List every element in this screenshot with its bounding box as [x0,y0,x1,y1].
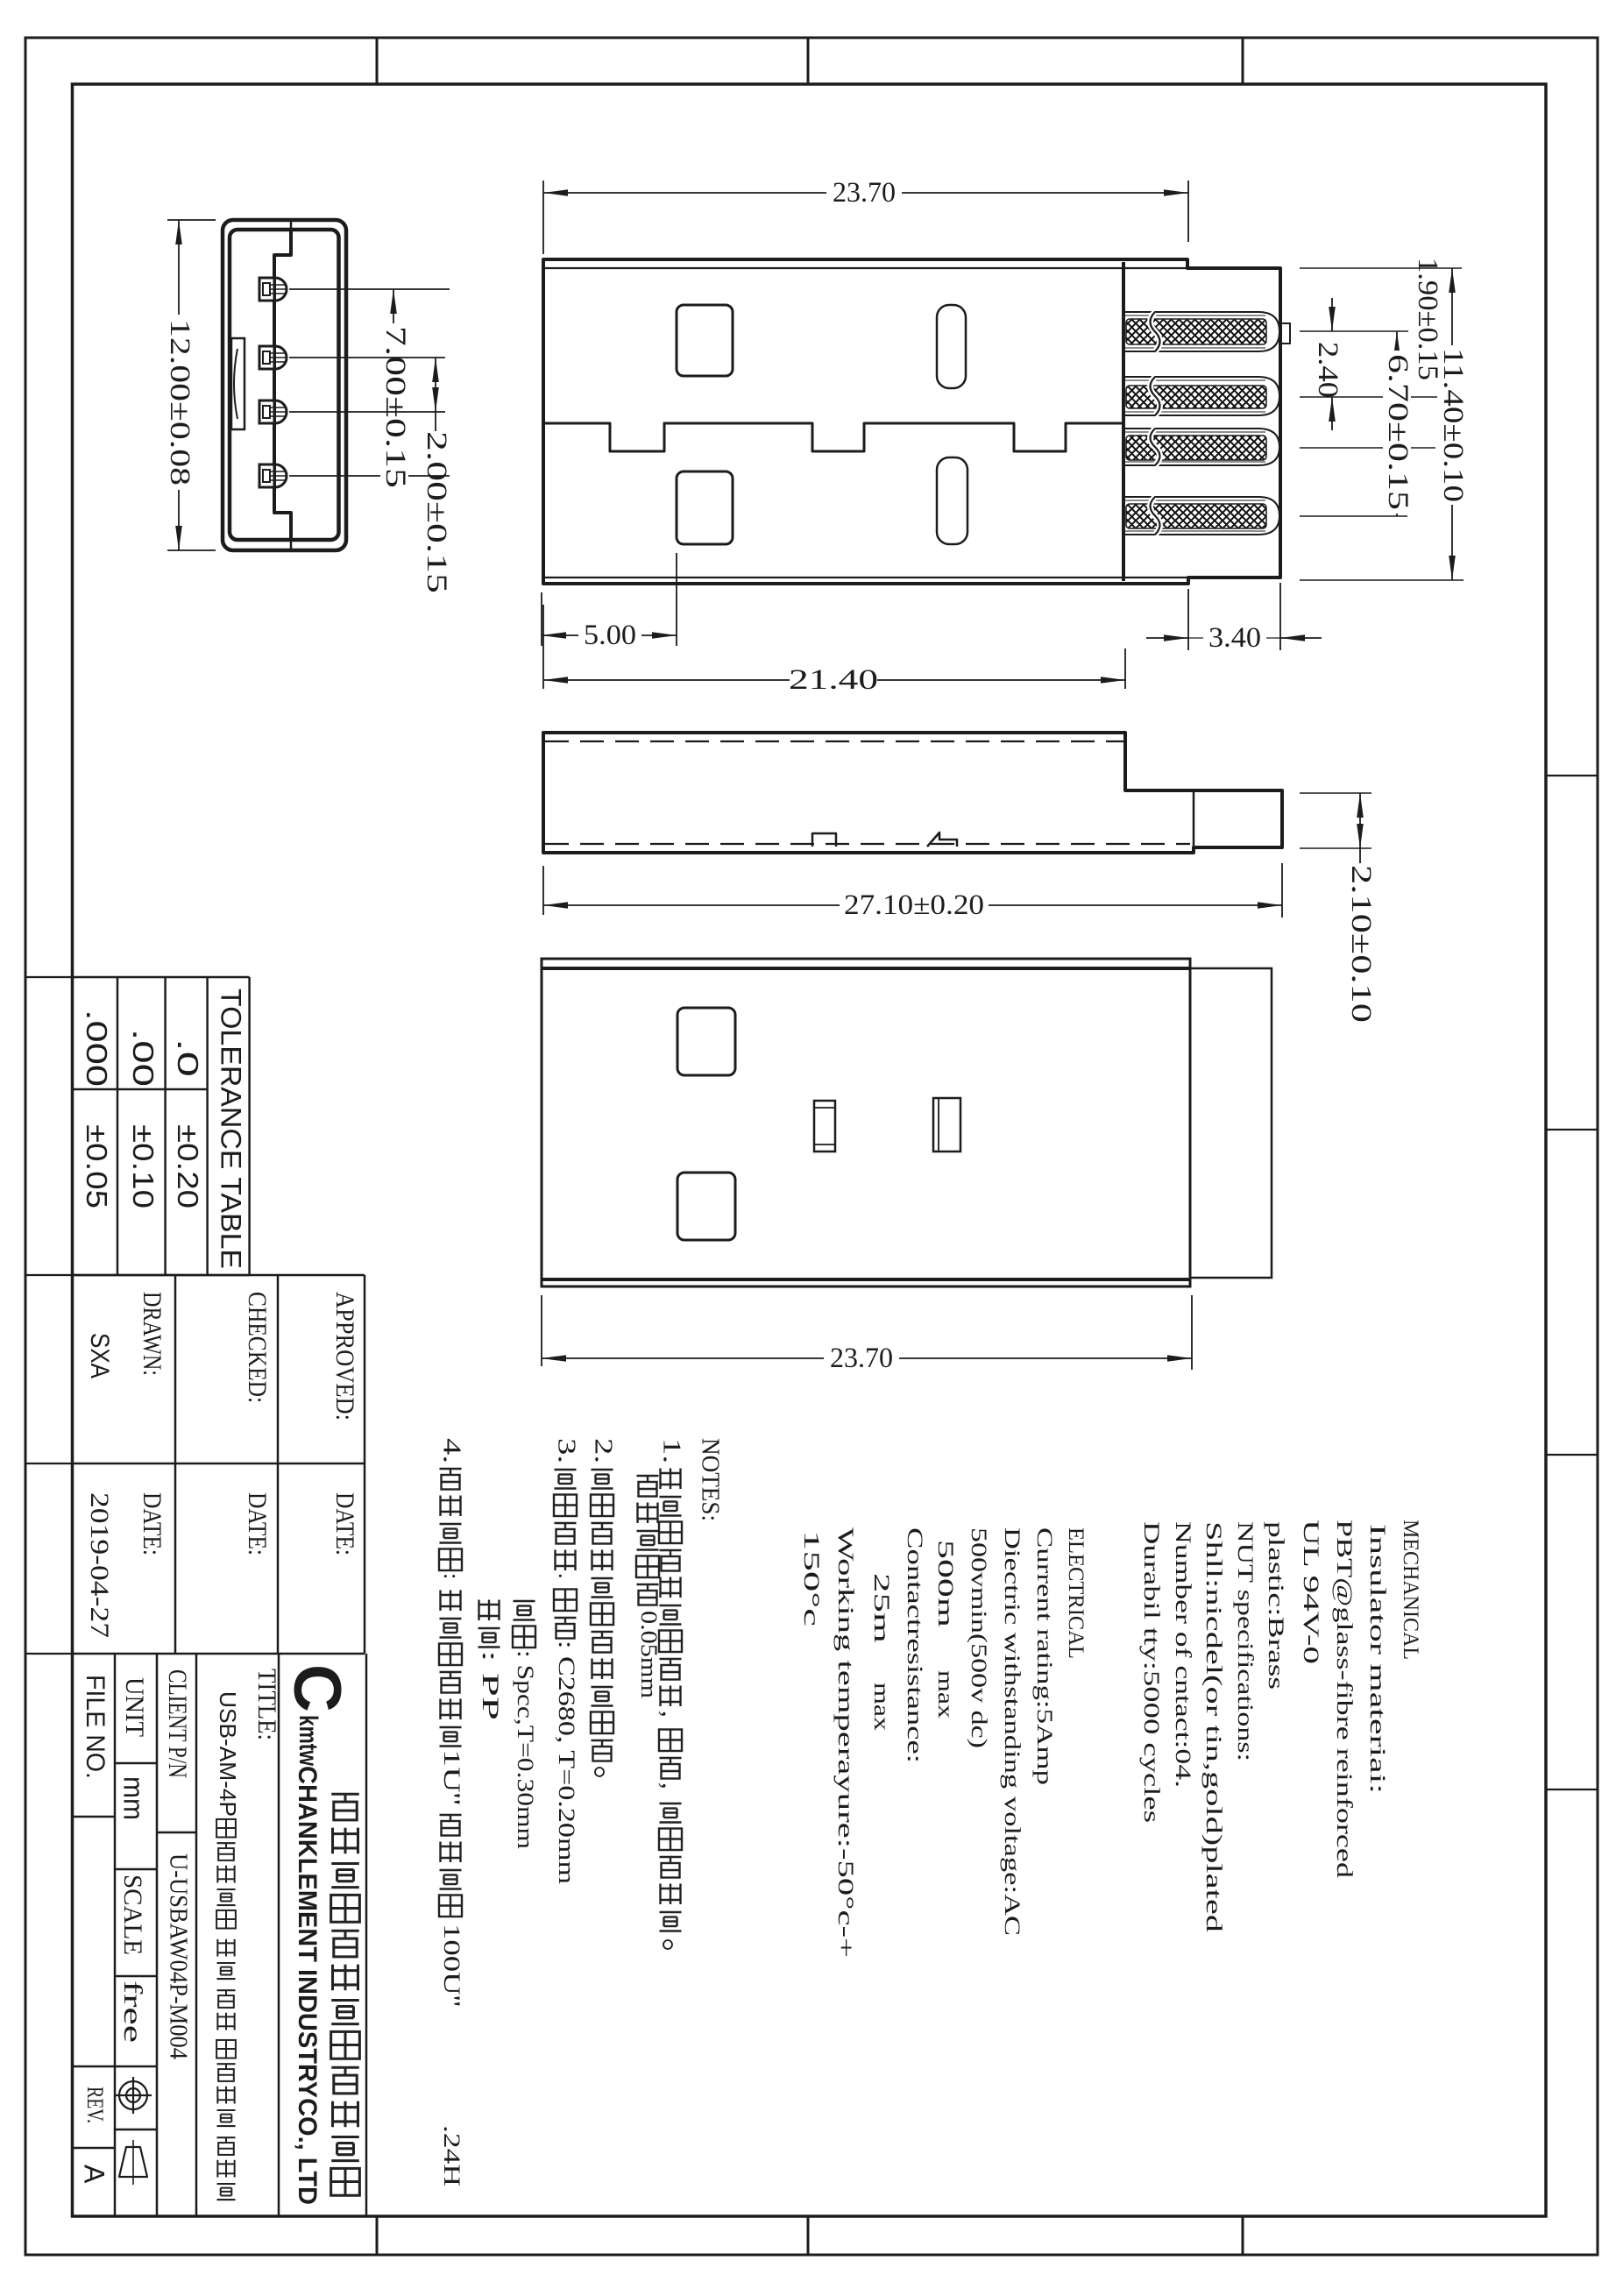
svg-text:DATE:: DATE: [330,1492,359,1555]
svg-text:3.40: 3.40 [1208,622,1261,654]
svg-text:2.40: 2.40 [1312,342,1343,398]
svg-text:3.: 3. [552,1438,579,1463]
svg-text:: C2680, T=0.20mm: : C2680, T=0.20mm [554,1641,579,1884]
svg-text:SXA: SXA [85,1333,114,1378]
svg-text:25m: 25m [869,1573,893,1644]
svg-text:C: C [280,1664,354,1712]
svg-text:A: A [78,2165,110,2184]
svg-text:Insulator materiai:: Insulator materiai: [1365,1524,1389,1794]
svg-text:Shll:nicdel(or tin,gold)plated: Shll:nicdel(or tin,gold)plated [1201,1521,1225,1933]
svg-text:PBT@glass-fibre reinforced: PBT@glass-fibre reinforced [1332,1520,1356,1879]
svg-text:max: max [933,1670,957,1719]
svg-text:150°c: 150°c [799,1530,823,1626]
svg-text:free: free [118,1981,147,2043]
svg-text:500vmin(500v dc): 500vmin(500v dc) [967,1527,990,1748]
svg-text:0.05mm: 0.05mm [636,1611,662,1698]
svg-text:Number of cntact:04.: Number of cntact:04. [1171,1521,1194,1788]
svg-text:1.: 1. [657,1438,684,1463]
svg-text:Diectric withstanding voltage:: Diectric withstanding voltage:AC [1000,1527,1024,1936]
svg-text:MECHANICAL: MECHANICAL [1399,1520,1422,1660]
svg-text:7.00±0.15: 7.00±0.15 [379,326,411,488]
svg-text:,: , [657,1782,688,1789]
svg-text:.00: .00 [127,1029,159,1087]
svg-text:.: . [554,1573,579,1579]
svg-text:4.: 4. [437,1438,464,1463]
svg-text:NUT specifications:: NUT specifications: [1233,1521,1257,1761]
svg-text:.000: .000 [81,1010,113,1087]
svg-text:ELECTRICAL: ELECTRICAL [1064,1527,1088,1659]
svg-text:27.10±0.20: 27.10±0.20 [844,889,984,921]
svg-text:1.90±0.15: 1.90±0.15 [1412,258,1443,380]
svg-text:±0.20: ±0.20 [172,1124,204,1208]
svg-text:USB-AM-4P: USB-AM-4P [215,1691,241,1817]
svg-text:CHANKLEMENT INDUSTRYCO., LTD: CHANKLEMENT INDUSTRYCO., LTD [293,1766,322,2205]
svg-text:2.10±0.10: 2.10±0.10 [1345,865,1377,1023]
svg-text:Working temperayure:-50°c-+: Working temperayure:-50°c-+ [833,1527,857,1958]
svg-text:6.70±0.15: 6.70±0.15 [1382,354,1414,510]
svg-text:DATE:: DATE: [138,1492,167,1555]
svg-text:100U'': 100U'' [439,1924,464,2007]
svg-text:TITLE:: TITLE: [252,1669,281,1740]
svg-text:: Spcc,T=0.30mm: : Spcc,T=0.30mm [513,1650,538,1849]
svg-text:Contactresistance:: Contactresistance: [903,1527,926,1763]
svg-text:TOLERANCE TABLE: TOLERANCE TABLE [215,989,246,1269]
svg-text:2.: 2. [589,1438,616,1463]
svg-text:2.00±0.15: 2.00±0.15 [421,431,452,593]
svg-text:DATE:: DATE: [243,1492,272,1555]
svg-text:21.40: 21.40 [789,664,878,696]
svg-text::: : [439,1573,464,1579]
svg-text:±0.10: ±0.10 [127,1124,159,1208]
svg-text:SCALE: SCALE [118,1874,147,1955]
svg-text:,: , [657,1711,688,1718]
svg-text:UL 94V-0: UL 94V-0 [1299,1520,1322,1664]
svg-text:APPROVED:: APPROVED: [330,1292,359,1421]
svg-text:DRAWN:: DRAWN: [138,1292,167,1376]
svg-text:NOTES:: NOTES: [696,1438,723,1521]
svg-text:±0.05: ±0.05 [81,1124,113,1208]
svg-text:1U'': 1U'' [439,1749,464,1805]
svg-text:2019-04-27: 2019-04-27 [85,1492,114,1638]
svg-text:.0: .0 [172,1038,204,1077]
svg-text:.24H: .24H [439,2125,464,2186]
svg-text:: PP: : PP [478,1650,503,1720]
svg-text:plastic:Brass: plastic:Brass [1264,1521,1287,1690]
svg-text:FILE NO.: FILE NO. [81,1675,110,1779]
svg-text:23.70: 23.70 [830,1343,893,1374]
svg-text:U-USBAW04P-M004: U-USBAW04P-M004 [164,1853,191,2059]
svg-text:CHECKED:: CHECKED: [243,1292,272,1403]
svg-text:Current rating:5Amp: Current rating:5Amp [1032,1527,1056,1785]
svg-text:5.00: 5.00 [584,620,636,651]
svg-text:CLIENT P/N: CLIENT P/N [163,1669,192,1778]
svg-text:REV.: REV. [82,2087,108,2123]
svg-text:kmtw: kmtw [294,1715,322,1767]
svg-text:max: max [869,1683,893,1732]
svg-text:12.00±0.08: 12.00±0.08 [164,319,195,485]
svg-text:500m: 500m [933,1540,957,1628]
svg-text:mm: mm [117,1776,149,1820]
svg-text:23.70: 23.70 [833,177,896,209]
svg-text:Durabil tty:5000 cycles: Durabil tty:5000 cycles [1139,1521,1163,1823]
svg-text:UNIT: UNIT [120,1677,149,1737]
